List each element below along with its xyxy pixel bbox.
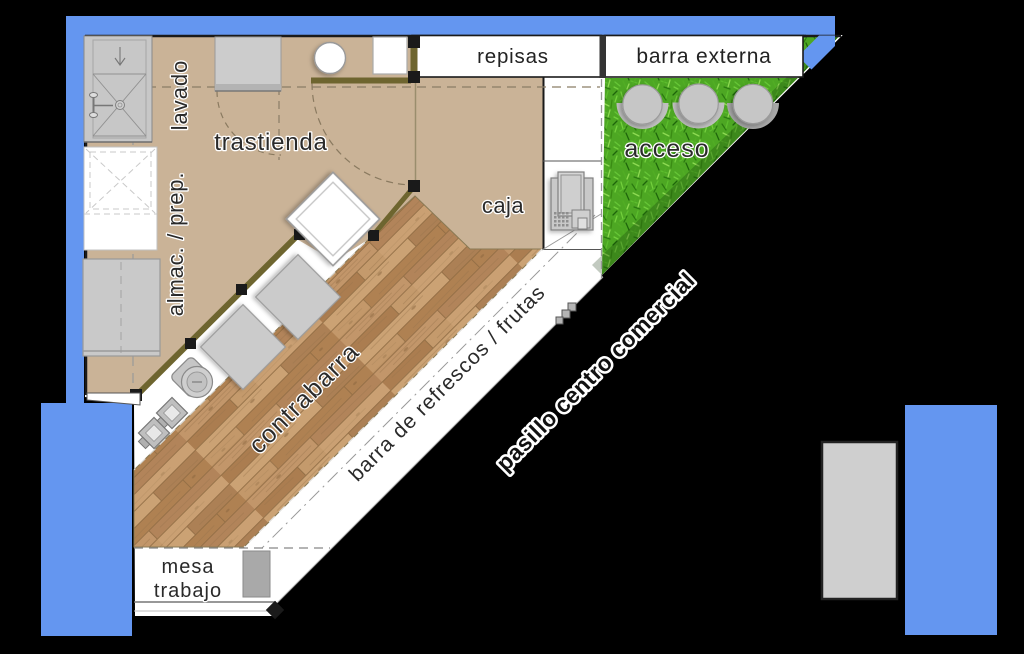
svg-text:caja: caja (482, 193, 525, 218)
svg-text:trabajo: trabajo (154, 580, 222, 602)
svg-text:acceso: acceso (624, 135, 709, 163)
svg-text:almac. / prep.: almac. / prep. (163, 172, 188, 316)
svg-text:trastienda: trastienda (214, 129, 327, 156)
svg-text:lavado: lavado (167, 60, 192, 131)
svg-text:mesa: mesa (162, 556, 215, 578)
svg-text:barra externa: barra externa (636, 45, 771, 68)
svg-text:repisas: repisas (477, 45, 549, 68)
